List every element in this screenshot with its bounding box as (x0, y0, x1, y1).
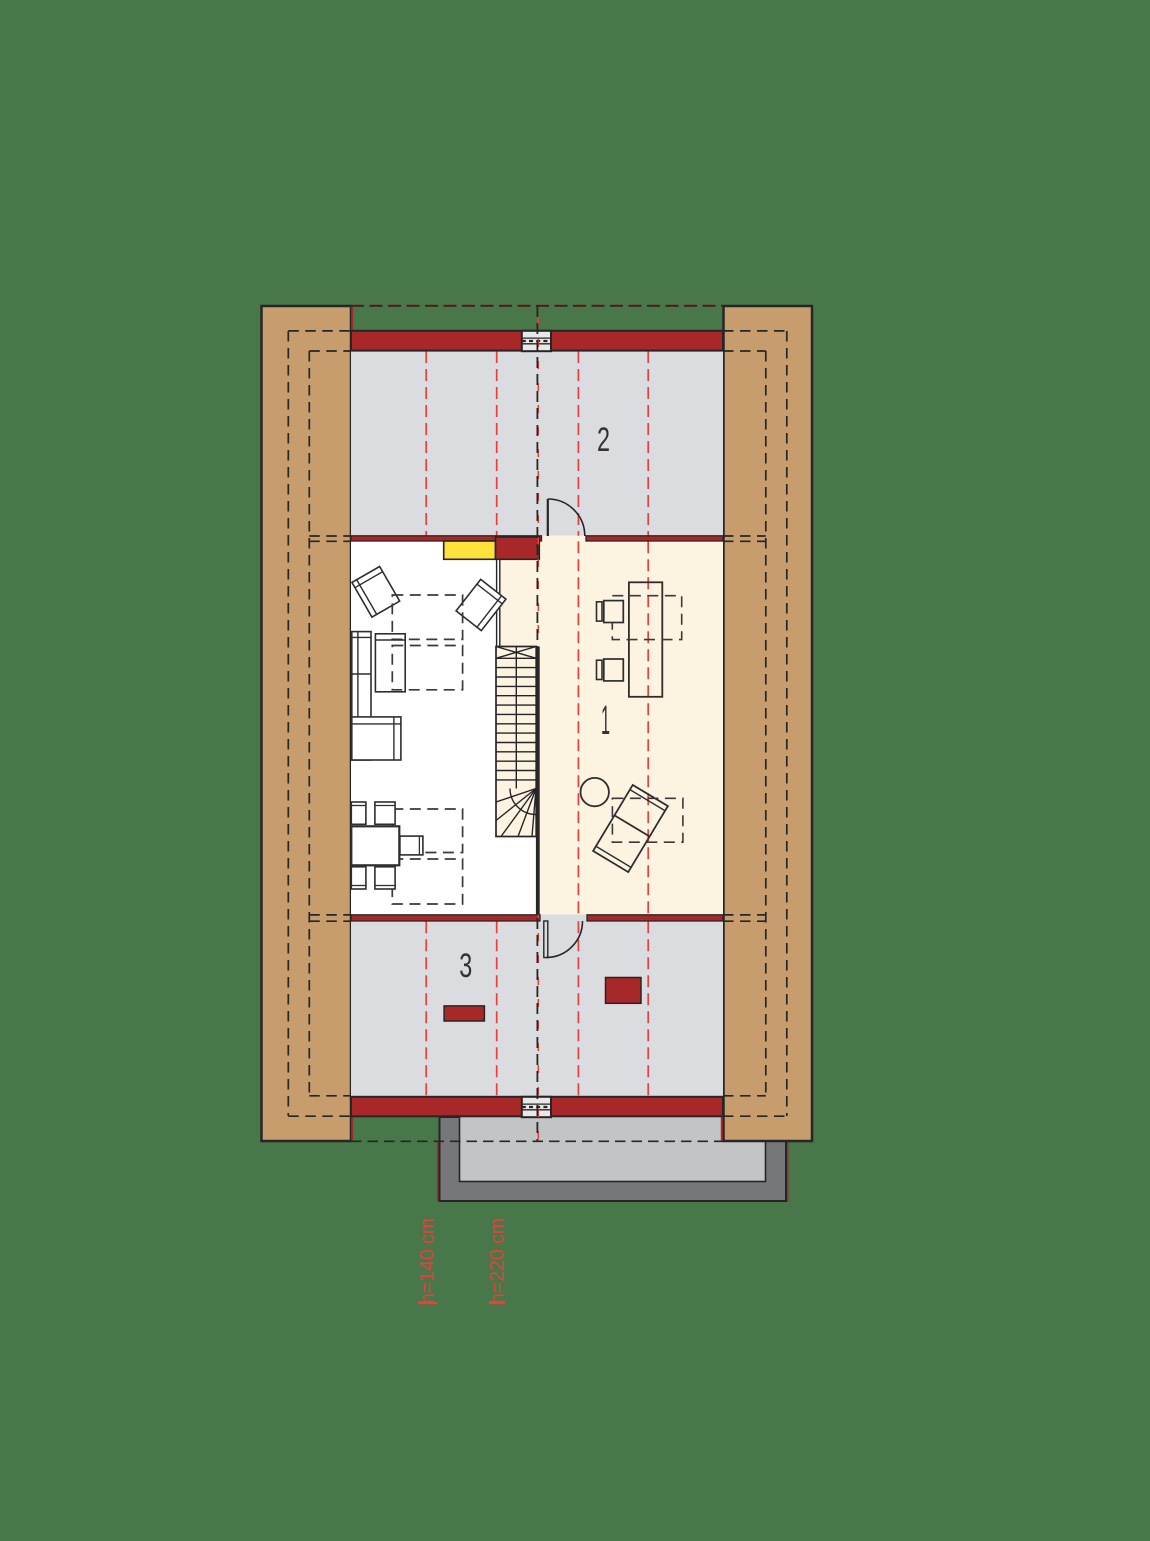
svg-text:1: 1 (601, 697, 610, 743)
svg-text:3: 3 (459, 947, 472, 985)
svg-text:h=220 cm: h=220 cm (487, 1218, 509, 1304)
svg-text:h=140 cm: h=140 cm (417, 1218, 439, 1304)
svg-text:2: 2 (597, 421, 610, 459)
